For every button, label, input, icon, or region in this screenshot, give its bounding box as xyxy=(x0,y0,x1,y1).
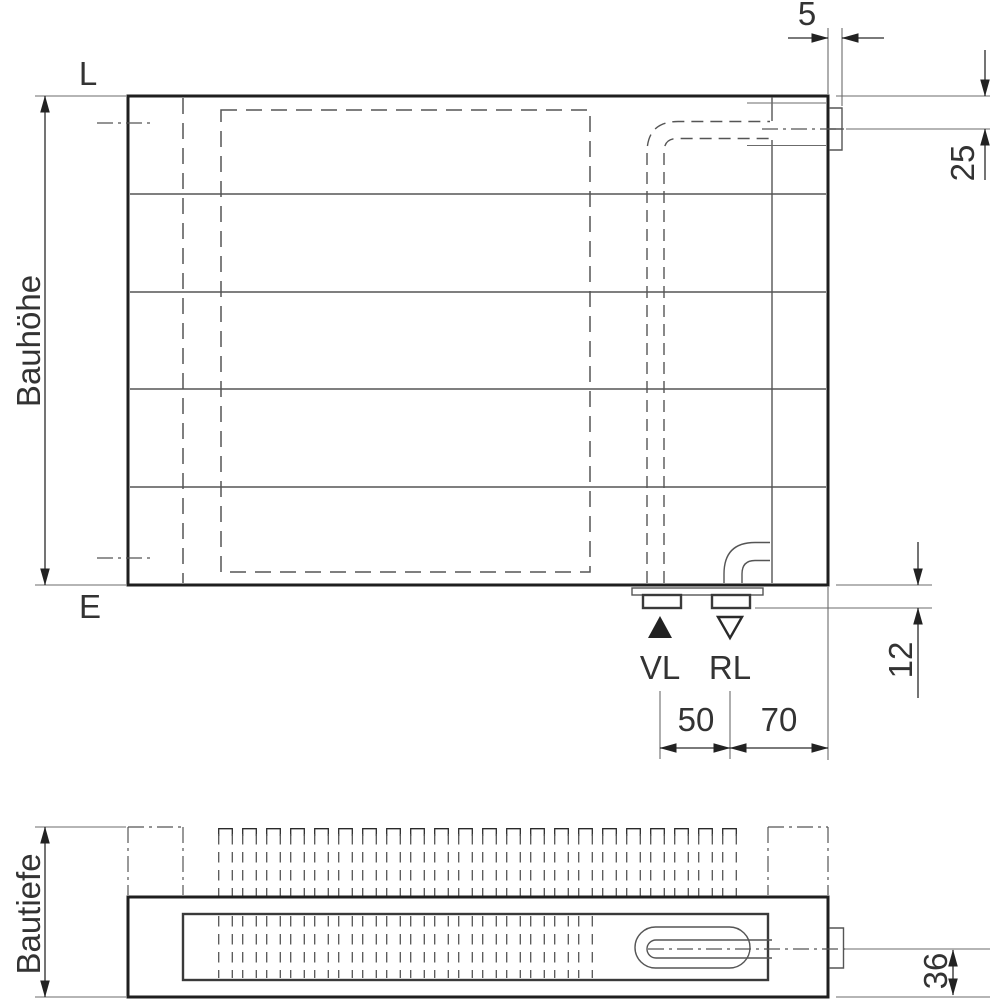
supply-return-spacing-value: 50 xyxy=(678,701,715,738)
radiator-body-outline xyxy=(128,96,828,585)
fin-lines xyxy=(219,829,737,836)
supply-label: VL xyxy=(640,649,680,686)
return-edge-spacing-value: 70 xyxy=(761,701,798,738)
tab-width-dimension: 5 xyxy=(788,0,884,106)
bracket-phantom-left xyxy=(128,827,183,895)
depth-dimension: Bautiefe xyxy=(10,827,126,997)
pipe-oval-outer xyxy=(635,927,750,968)
center-to-bottom-value: 36 xyxy=(917,953,954,990)
stub-protrusion-dimension: 12 xyxy=(755,542,932,698)
bracket-phantom-right xyxy=(768,827,828,895)
convector-fins-top xyxy=(219,829,737,896)
depth-dim-label: Bautiefe xyxy=(10,853,47,974)
supply-pipe-hidden xyxy=(647,122,770,584)
height-dim-label: Bauhöhe xyxy=(10,275,47,407)
convector-fins-inner xyxy=(219,916,593,978)
top-offset-dimension: 25 xyxy=(836,50,990,181)
supply-stub xyxy=(643,595,681,608)
corner-label-bottom: E xyxy=(79,588,101,625)
corner-label-top: L xyxy=(79,55,97,92)
convector-channel-outline xyxy=(183,914,768,980)
side-connection-tab xyxy=(829,928,844,968)
front-view: VL RL Bauhöhe L E 5 25 xyxy=(10,0,990,760)
top-offset-value: 25 xyxy=(944,145,981,182)
top-view: Bautiefe 36 xyxy=(10,827,990,997)
return-pipe-elbow xyxy=(724,543,770,584)
return-stub xyxy=(712,595,750,608)
hidden-convector-outline xyxy=(221,110,590,572)
radiator-dimension-drawing: VL RL Bauhöhe L E 5 25 xyxy=(0,0,1000,1000)
stub-protrusion-value: 12 xyxy=(882,642,919,679)
return-flow-icon xyxy=(718,617,742,638)
top-view-body-outline xyxy=(128,897,828,997)
center-to-bottom-dimension: 36 xyxy=(836,950,990,997)
supply-flow-icon xyxy=(648,616,672,638)
tab-width-value: 5 xyxy=(798,0,816,32)
panel-section-lines xyxy=(130,194,826,487)
return-label: RL xyxy=(709,649,751,686)
fin-lines xyxy=(219,834,737,896)
height-dimension: Bauhöhe L E xyxy=(10,55,126,625)
fin-lines xyxy=(219,916,593,978)
